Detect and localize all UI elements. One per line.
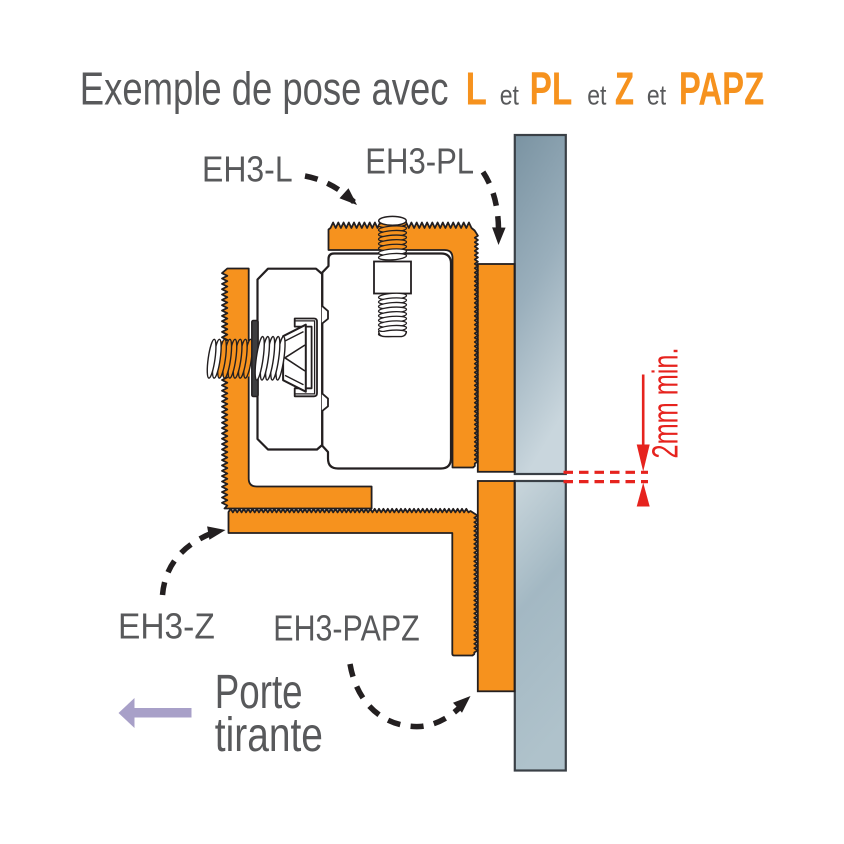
svg-text:EH3-PL: EH3-PL [365, 140, 474, 181]
svg-text:et: et [500, 80, 519, 111]
svg-text:tirante: tirante [215, 709, 323, 762]
svg-text:et: et [647, 80, 666, 111]
svg-text:EH3-L: EH3-L [202, 148, 293, 189]
svg-text:EH3-Z: EH3-Z [118, 606, 215, 647]
svg-text:2mm min.: 2mm min. [645, 348, 686, 459]
svg-text:PL: PL [530, 63, 573, 115]
svg-text:L: L [466, 63, 487, 115]
svg-text:Z: Z [615, 63, 634, 115]
svg-text:Exemple de pose avec: Exemple de pose avec [80, 63, 449, 115]
svg-text:et: et [587, 80, 606, 111]
svg-text:PAPZ: PAPZ [679, 63, 764, 115]
svg-text:EH3-PAPZ: EH3-PAPZ [273, 607, 419, 648]
